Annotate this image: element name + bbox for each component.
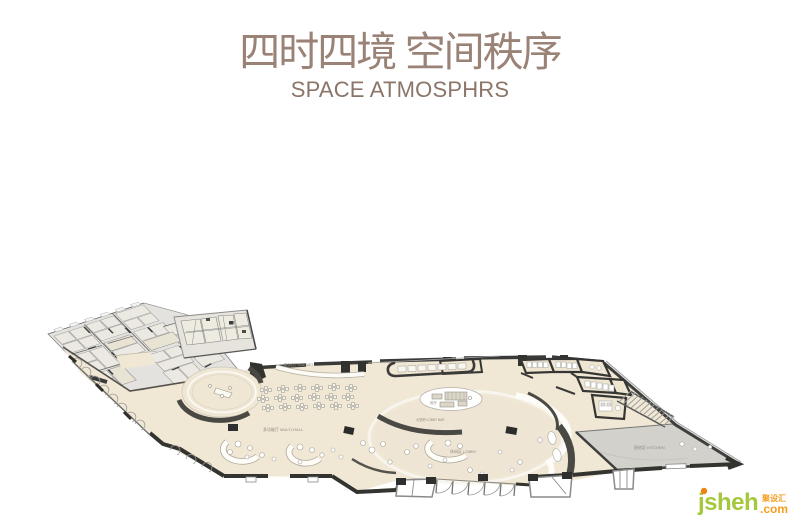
svg-text:多功能厅 MULTI-HALL: 多功能厅 MULTI-HALL [263,426,304,432]
svg-text:.com: .com [760,502,788,516]
svg-text:宴会前厅 BANQUET: 宴会前厅 BANQUET [284,362,313,367]
svg-text:休闲区 LOBBY: 休闲区 LOBBY [450,448,477,454]
svg-text:厨房区 KITCHEN: 厨房区 KITCHEN [634,444,665,450]
svg-text:前厅: 前厅 [430,400,438,405]
svg-text:大堂吧 LOBBY BAR: 大堂吧 LOBBY BAR [416,417,445,422]
